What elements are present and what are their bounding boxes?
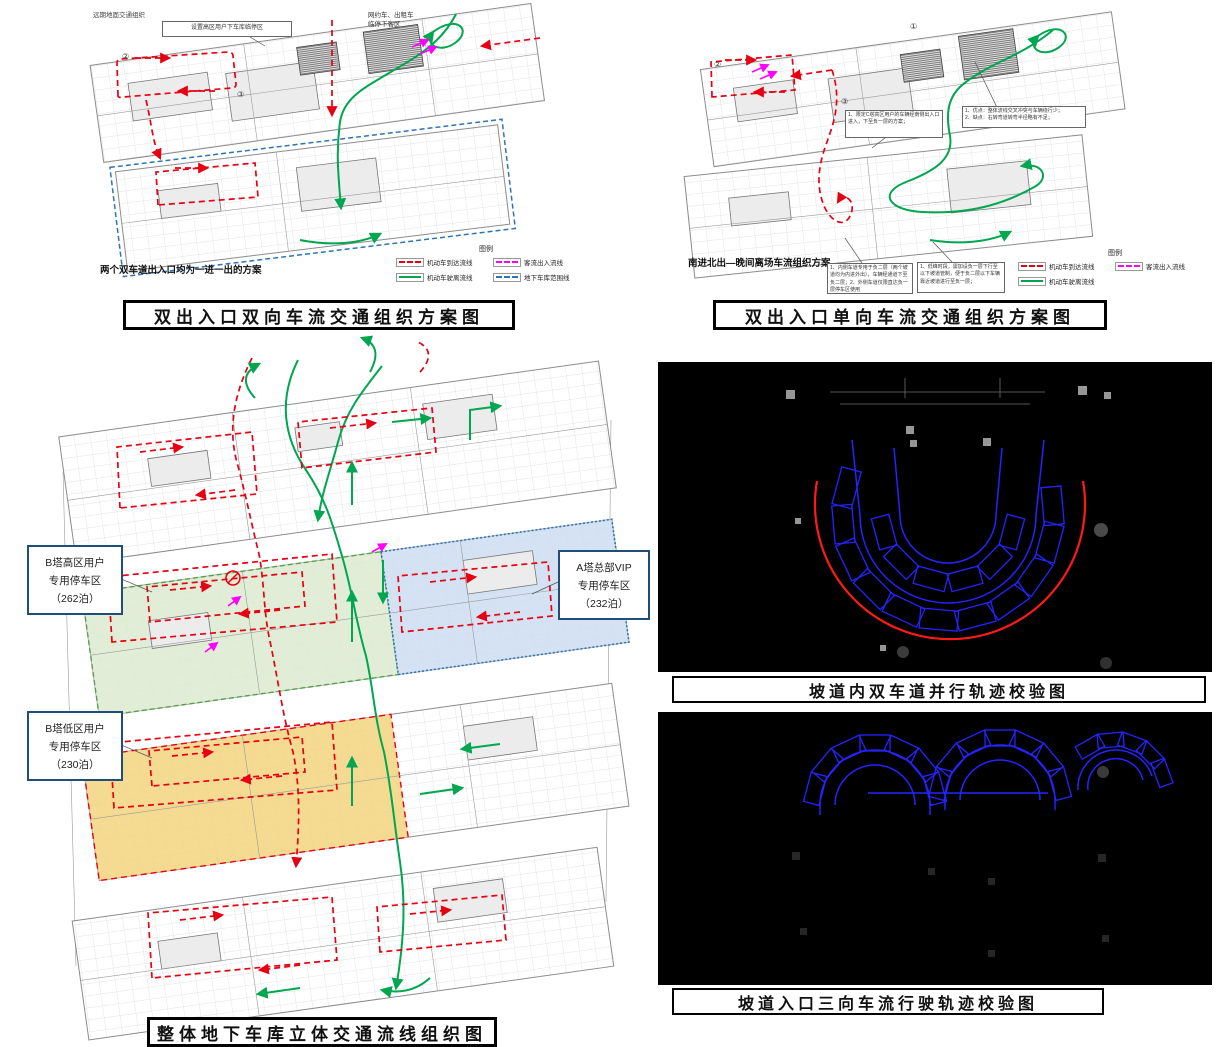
- fig2-legend-departure: 机动车驶离流线: [1018, 276, 1113, 286]
- fig1-marker-2: ②: [122, 52, 129, 61]
- fig1-bottom-note: 两个双车道出入口均为一进一出的方案: [100, 262, 262, 276]
- green-solid-line-sample: [396, 273, 424, 282]
- zone-b-high-line3: （262泊）: [29, 591, 121, 606]
- fig2-legend-departure-label: 机动车驶离流线: [1049, 276, 1095, 286]
- zone-b-low-line3: （230泊）: [29, 757, 121, 772]
- fig1-legend-arrival: 机动车到达流线: [396, 257, 491, 267]
- fig1-legend-departure: 机动车驶离流线: [396, 272, 491, 282]
- fig1-marker-3: ③: [237, 90, 244, 99]
- fig2-legend-title: 图例: [1018, 248, 1212, 258]
- zone-b-low-line2: 专用停车区: [29, 739, 121, 754]
- red-dashed-line-sample: [1018, 262, 1046, 271]
- fig2-callout-1: 1、限定C塔高区用户的车辆经南侧出入口进入，下至负一层的方案；: [845, 110, 943, 138]
- fig2-scheme-label: 南进北出—晚间离场车流组织方案: [688, 255, 831, 269]
- fig1-callout: 设置高区用户下车库临停区: [162, 21, 292, 37]
- fig1-legend-departure-label: 机动车驶离流线: [427, 272, 473, 282]
- fig2-marker-3: ③: [841, 97, 848, 106]
- fig2-legend-passenger-label: 客流出入流线: [1146, 261, 1185, 271]
- fig2-callout-2-line2: 2、缺点：右转弯道转弯半径略有不足；: [965, 115, 1083, 122]
- green-solid-line-sample: [1018, 277, 1046, 286]
- fig1-dropoff-label: 网约车、出租车 临停下客区: [368, 12, 414, 30]
- zone-a-vip-line3: （232泊）: [560, 596, 648, 611]
- fig4-caption: 坡道内双车道并行轨迹校验图: [672, 676, 1206, 703]
- fig5-caption: 坡道入口三向车流行驶轨迹校验图: [672, 988, 1104, 1015]
- fig2-marker-2: ②: [714, 60, 721, 69]
- zone-b-high-line1: B塔高区用户: [29, 555, 121, 570]
- fig2-legend-passenger: 客流出入流线: [1115, 261, 1212, 271]
- fig1-caption: 双出入口双向车流交通组织方案图: [123, 300, 515, 330]
- fig2-marker-1: ①: [910, 22, 917, 31]
- fig1-corner-note: 远期地面交通组织: [93, 9, 145, 19]
- magenta-dashed-line-sample: [1115, 262, 1143, 271]
- fig1-legend-arrival-label: 机动车到达流线: [427, 257, 473, 267]
- figures-artwork: .rd{fill:none;stroke:#e60012;stroke-widt…: [0, 0, 1216, 1047]
- blue-dashed-line-sample: [493, 273, 521, 282]
- zone-b-low-line1: B塔低区用户: [29, 721, 121, 736]
- fig3-zone-b-low: B塔低区用户 专用停车区 （230泊）: [27, 711, 123, 781]
- fig1-legend-passenger-label: 客流出入流线: [524, 257, 563, 267]
- fig1-legend-boundary: 地下车库范围线: [493, 272, 576, 282]
- fig1-legend-passenger: 客流出入流线: [493, 257, 576, 267]
- fig1-legend: 图例 机动车到达流线 客流出入流线 机动车驶离流线 地下车库范围线: [396, 244, 576, 282]
- fig4-ramp-check-panel: [658, 362, 1212, 672]
- fig2-caption: 双出入口单向车流交通组织方案图: [713, 300, 1107, 330]
- fig1-legend-boundary-label: 地下车库范围线: [524, 272, 570, 282]
- fig2-note-1: 1、内侧车道专用于负二层（两个坡道均为内进外出），车辆经通道下至负二层；2、外侧…: [827, 263, 913, 294]
- fig3-caption: 整体地下车库立体交通流线组织图: [147, 1017, 497, 1047]
- magenta-dashed-line-sample: [493, 258, 521, 267]
- report-figures-page: .rd{fill:none;stroke:#e60012;stroke-widt…: [0, 0, 1216, 1047]
- fig2-legend: 图例 机动车到达流线 客流出入流线 机动车驶离流线: [1018, 248, 1212, 286]
- fig2-note-2: 1、低峰时段，需加设负一层下行至以下坡道管制，便于负二层以下车辆靠近坡道进行至负…: [917, 262, 1005, 293]
- fig3-level3: [82, 683, 629, 880]
- fig1-legend-title: 图例: [396, 244, 576, 254]
- fig5-entry-check-panel: [658, 712, 1212, 985]
- fig2-callout-2: 1、优点：整体流线交叉冲突与车辆绕行少； 2、缺点：右转弯道转弯半径略有不足；: [962, 106, 1086, 128]
- zone-b-high-line2: 专用停车区: [29, 573, 121, 588]
- fig3-zone-b-high: B塔高区用户 专用停车区 （262泊）: [27, 545, 123, 615]
- zone-a-vip-line1: A塔总部VIP: [560, 560, 648, 575]
- fig1-dropoff-line1: 网约车、出租车: [368, 12, 414, 19]
- zone-a-vip-line2: 专用停车区: [560, 578, 648, 593]
- fig3-zone-a-vip: A塔总部VIP 专用停车区 （232泊）: [558, 550, 650, 620]
- red-dashed-line-sample: [396, 258, 424, 267]
- fig3-level4: [72, 847, 614, 1040]
- fig2-legend-arrival-label: 机动车到达流线: [1049, 261, 1095, 271]
- fig2-legend-arrival: 机动车到达流线: [1018, 261, 1113, 271]
- fig1-dropoff-line2: 临停下客区: [368, 21, 401, 28]
